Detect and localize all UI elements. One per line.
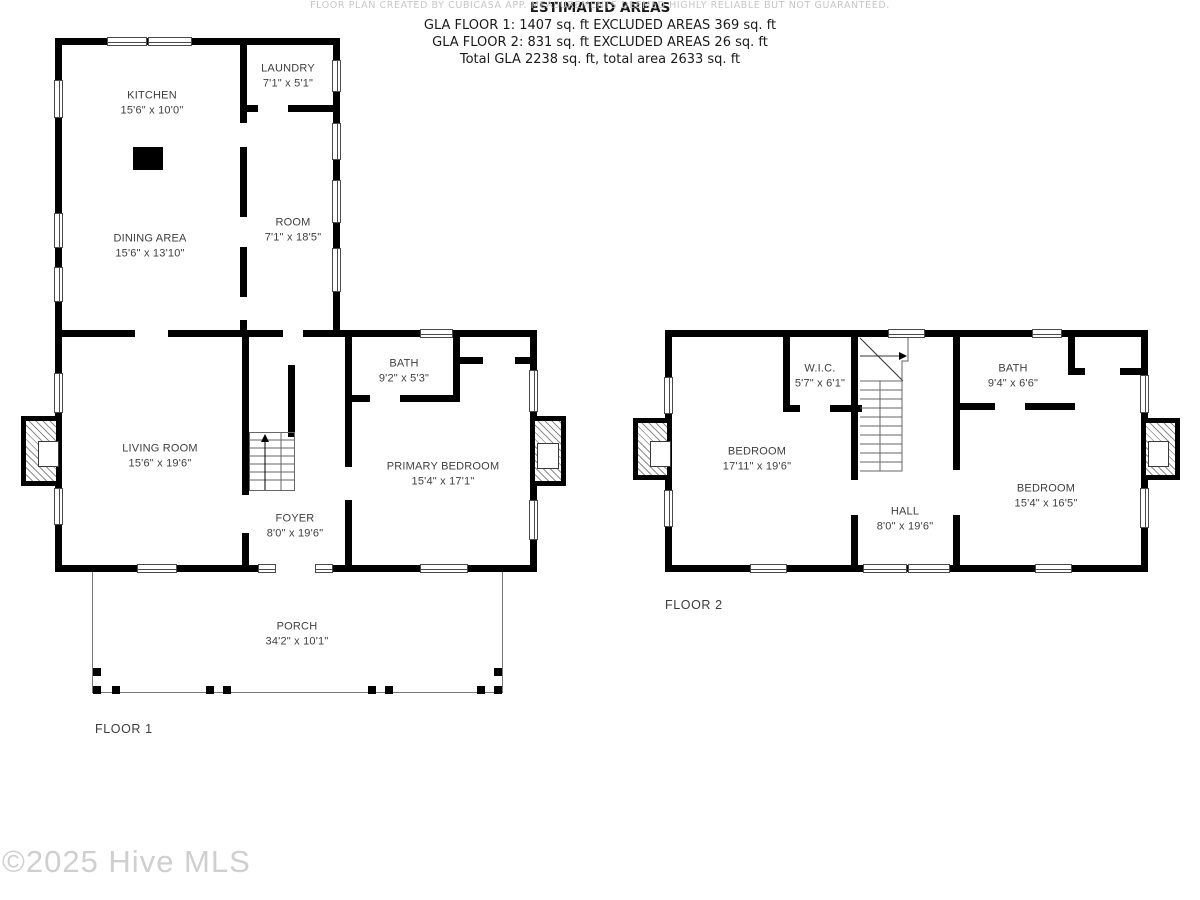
door-opening: [240, 217, 247, 247]
disclaimer-text: FLOOR PLAN CREATED BY CUBICASA APP. MEAS…: [0, 0, 1200, 11]
window: [1035, 564, 1072, 573]
room-label-foyer: FOYER8'0" x 19'6": [267, 512, 324, 543]
room-label-bedroom-right: BEDROOM15'4" x 16'5": [1015, 482, 1078, 513]
room-label-bath1: BATH9'2" x 5'3": [379, 357, 429, 388]
room-label-bedroom-left: BEDROOM17'11" x 19'6": [723, 445, 791, 476]
stove: [133, 147, 163, 170]
chimney: [21, 416, 61, 486]
porch-post: [494, 686, 502, 694]
room-label-kitchen: KITCHEN15'6" x 10'0": [121, 89, 184, 120]
window: [529, 500, 538, 540]
room-label-primary-bedroom: PRIMARY BEDROOM15'4" x 17'1": [387, 460, 500, 491]
window: [54, 80, 63, 118]
wall: [953, 515, 960, 565]
porch-post: [93, 668, 101, 676]
porch-post: [93, 686, 101, 694]
room-label-porch: PORCH34'2" x 10'1": [266, 620, 329, 651]
wall: [851, 337, 858, 480]
window: [332, 180, 341, 223]
wall: [851, 515, 858, 565]
window: [54, 213, 63, 248]
window: [54, 267, 63, 302]
floor2-label: FLOOR 2: [665, 598, 723, 612]
gla-floor2-line: GLA FLOOR 2: 831 sq. ft EXCLUDED AREAS 2…: [0, 34, 1200, 51]
wall: [453, 337, 460, 402]
door-opening: [240, 123, 247, 147]
gla-floor1-line: GLA FLOOR 1: 1407 sq. ft EXCLUDED AREAS …: [0, 17, 1200, 34]
room-label-bath2: BATH9'4" x 6'6": [988, 362, 1038, 393]
chimney: [633, 418, 672, 480]
room-label-dining-area: DINING AREA15'6" x 13'10": [113, 232, 186, 263]
door-opening: [483, 357, 515, 364]
window: [54, 373, 63, 413]
chimney-flue: [650, 441, 671, 467]
wall: [1068, 337, 1075, 375]
porch-post: [385, 686, 393, 694]
front-door-opening: [276, 565, 315, 572]
window: [332, 248, 341, 292]
floor-plan-canvas: KITCHEN15'6" x 10'0" LAUNDRY7'1" x 5'1" …: [0, 0, 1200, 900]
watermark: ©2025 Hive MLS: [2, 844, 251, 880]
window: [664, 377, 673, 414]
door-opening: [242, 495, 249, 533]
stairs-floor2: [858, 337, 910, 473]
floor1-label: FLOOR 1: [95, 722, 153, 736]
room-label-living-room: LIVING ROOM15'6" x 19'6": [122, 442, 198, 473]
door-opening: [283, 330, 303, 337]
window: [664, 490, 673, 527]
room-label-wic: W.I.C.5'7" x 6'1": [795, 362, 845, 393]
chimney: [530, 416, 566, 486]
chimney-flue: [537, 443, 559, 469]
porch-post: [206, 686, 214, 694]
stairs-floor1: [249, 432, 296, 491]
window: [863, 564, 907, 573]
door-opening: [370, 395, 400, 402]
door-opening: [135, 330, 168, 337]
wall: [783, 337, 790, 412]
window: [420, 329, 453, 338]
porch-post: [494, 668, 502, 676]
chimney: [1141, 418, 1180, 480]
window: [54, 488, 63, 525]
door-opening: [1085, 368, 1120, 375]
porch-post: [368, 686, 376, 694]
window: [1032, 329, 1062, 338]
door-opening: [240, 297, 247, 320]
wall: [345, 395, 460, 402]
total-gla-line: Total GLA 2238 sq. ft, total area 2633 s…: [0, 51, 1200, 68]
door-opening: [800, 405, 830, 412]
porch-post: [112, 686, 120, 694]
wall: [345, 337, 352, 565]
porch-post: [477, 686, 485, 694]
door-opening: [258, 105, 288, 112]
room-label-room: ROOM7'1" x 18'5": [265, 216, 322, 247]
window: [908, 564, 950, 573]
chimney-flue: [1148, 441, 1169, 467]
window: [1140, 375, 1149, 413]
door-opening: [995, 403, 1025, 410]
chimney-flue: [38, 441, 59, 467]
room-label-hall: HALL8'0" x 19'6": [877, 505, 934, 536]
window: [750, 564, 787, 573]
window: [332, 123, 341, 160]
door-opening: [345, 467, 352, 500]
wall: [288, 365, 295, 437]
porch-post: [223, 686, 231, 694]
wall: [240, 38, 247, 337]
window: [529, 370, 538, 412]
window: [1140, 488, 1149, 528]
